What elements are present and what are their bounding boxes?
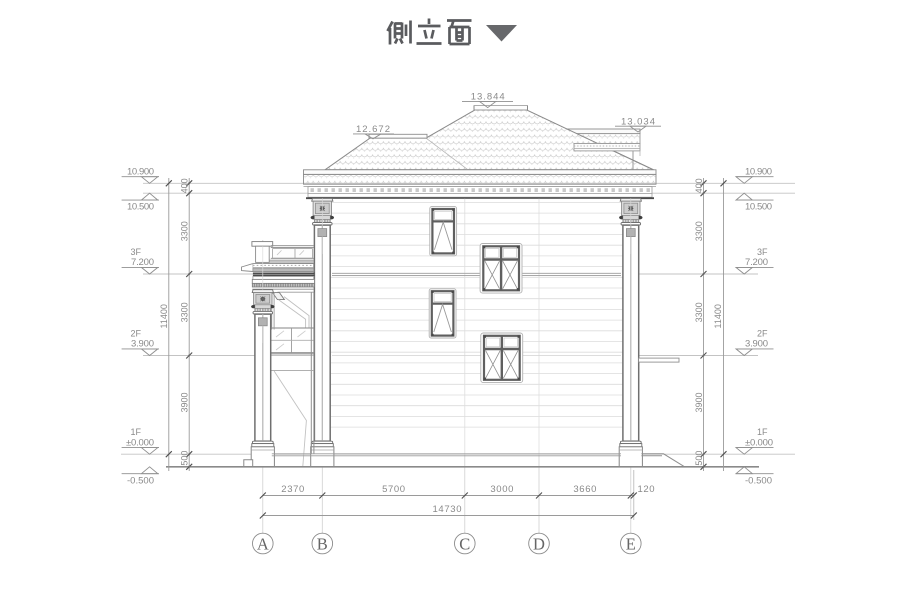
svg-text:7.200: 7.200 — [131, 257, 154, 268]
svg-text:3F: 3F — [757, 247, 768, 257]
svg-text:11400: 11400 — [159, 304, 169, 328]
svg-text:7.200: 7.200 — [745, 257, 768, 268]
svg-text:3300: 3300 — [179, 302, 189, 322]
svg-text:3.900: 3.900 — [745, 339, 768, 350]
svg-text:-0.500: -0.500 — [745, 475, 772, 486]
svg-text:13.844: 13.844 — [471, 92, 505, 103]
svg-text:C: C — [459, 534, 470, 553]
svg-text:120: 120 — [638, 484, 655, 495]
svg-text:13.034: 13.034 — [621, 116, 655, 127]
svg-text:10.900: 10.900 — [745, 167, 772, 178]
svg-text:2370: 2370 — [281, 484, 304, 495]
svg-text:-0.500: -0.500 — [127, 475, 154, 486]
svg-text:500: 500 — [179, 451, 189, 466]
svg-text:400: 400 — [694, 178, 704, 193]
svg-text:3000: 3000 — [490, 484, 513, 495]
svg-text:3900: 3900 — [694, 392, 704, 412]
svg-text:2F: 2F — [130, 329, 141, 339]
svg-text:3660: 3660 — [573, 484, 596, 495]
svg-text:500: 500 — [694, 451, 704, 466]
svg-text:3F: 3F — [130, 247, 141, 257]
svg-text:3300: 3300 — [694, 302, 704, 322]
svg-text:10.500: 10.500 — [745, 202, 772, 213]
svg-text:B: B — [317, 534, 328, 553]
svg-text:D: D — [533, 534, 545, 553]
svg-text:3900: 3900 — [179, 392, 189, 412]
svg-text:±0.000: ±0.000 — [126, 437, 154, 448]
svg-text:A: A — [257, 534, 269, 553]
svg-text:5700: 5700 — [382, 484, 405, 495]
svg-text:10.900: 10.900 — [127, 167, 154, 178]
svg-text:11400: 11400 — [713, 304, 723, 328]
svg-text:±0.000: ±0.000 — [745, 437, 773, 448]
svg-text:14730: 14730 — [433, 504, 462, 515]
svg-text:10.500: 10.500 — [127, 202, 154, 213]
svg-text:3.900: 3.900 — [131, 339, 154, 350]
svg-text:E: E — [626, 534, 636, 553]
svg-text:2F: 2F — [757, 329, 768, 339]
svg-text:1F: 1F — [130, 427, 141, 437]
svg-text:1F: 1F — [757, 427, 768, 437]
svg-text:400: 400 — [179, 178, 189, 193]
svg-text:3300: 3300 — [179, 221, 189, 241]
svg-text:3300: 3300 — [694, 221, 704, 241]
